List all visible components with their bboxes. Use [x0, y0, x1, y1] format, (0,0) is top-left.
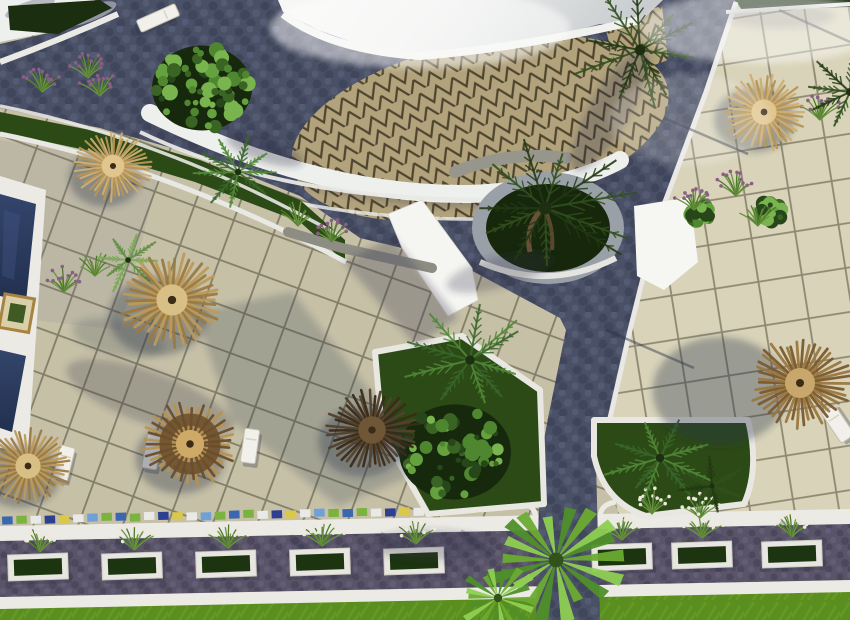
pool-spa-feature	[0, 294, 35, 333]
mosaic-tile	[229, 510, 240, 518]
mosaic-tile	[201, 512, 212, 520]
mosaic-tile	[243, 510, 254, 518]
mosaic-tile	[215, 512, 226, 520]
planter-box	[762, 540, 826, 572]
planter-box	[290, 548, 354, 580]
mosaic-tile	[271, 510, 282, 518]
mosaic-tile	[328, 509, 339, 517]
mosaic-tile	[342, 509, 353, 517]
mosaic-tile	[371, 508, 382, 516]
planter-box	[672, 541, 736, 573]
mosaic-tile	[144, 512, 155, 520]
mosaic-tile	[30, 516, 41, 524]
mosaic-tile	[16, 515, 27, 523]
mosaic-tile	[357, 508, 368, 516]
mosaic-tile	[45, 515, 56, 523]
mosaic-tile	[186, 512, 197, 520]
mosaic-tile	[73, 514, 84, 522]
planter-box	[102, 552, 166, 584]
mosaic-tile	[59, 515, 70, 523]
bush	[399, 404, 511, 499]
aerial-resort-render	[0, 0, 850, 620]
mosaic-tile	[130, 513, 141, 521]
mosaic-tile	[87, 513, 98, 521]
mosaic-tile	[101, 513, 112, 521]
mosaic-tile	[2, 516, 13, 524]
mosaic-tile	[314, 509, 325, 517]
mosaic-tile	[172, 512, 183, 520]
mosaic-tile	[257, 511, 268, 519]
planter-box	[8, 553, 72, 585]
mosaic-tile	[300, 509, 311, 517]
mosaic-tile	[385, 508, 396, 516]
mosaic-tile	[158, 512, 169, 520]
mosaic-tile	[115, 512, 126, 520]
mosaic-tile	[399, 507, 410, 515]
mosaic-tile	[286, 510, 297, 518]
planter-box	[196, 550, 260, 582]
